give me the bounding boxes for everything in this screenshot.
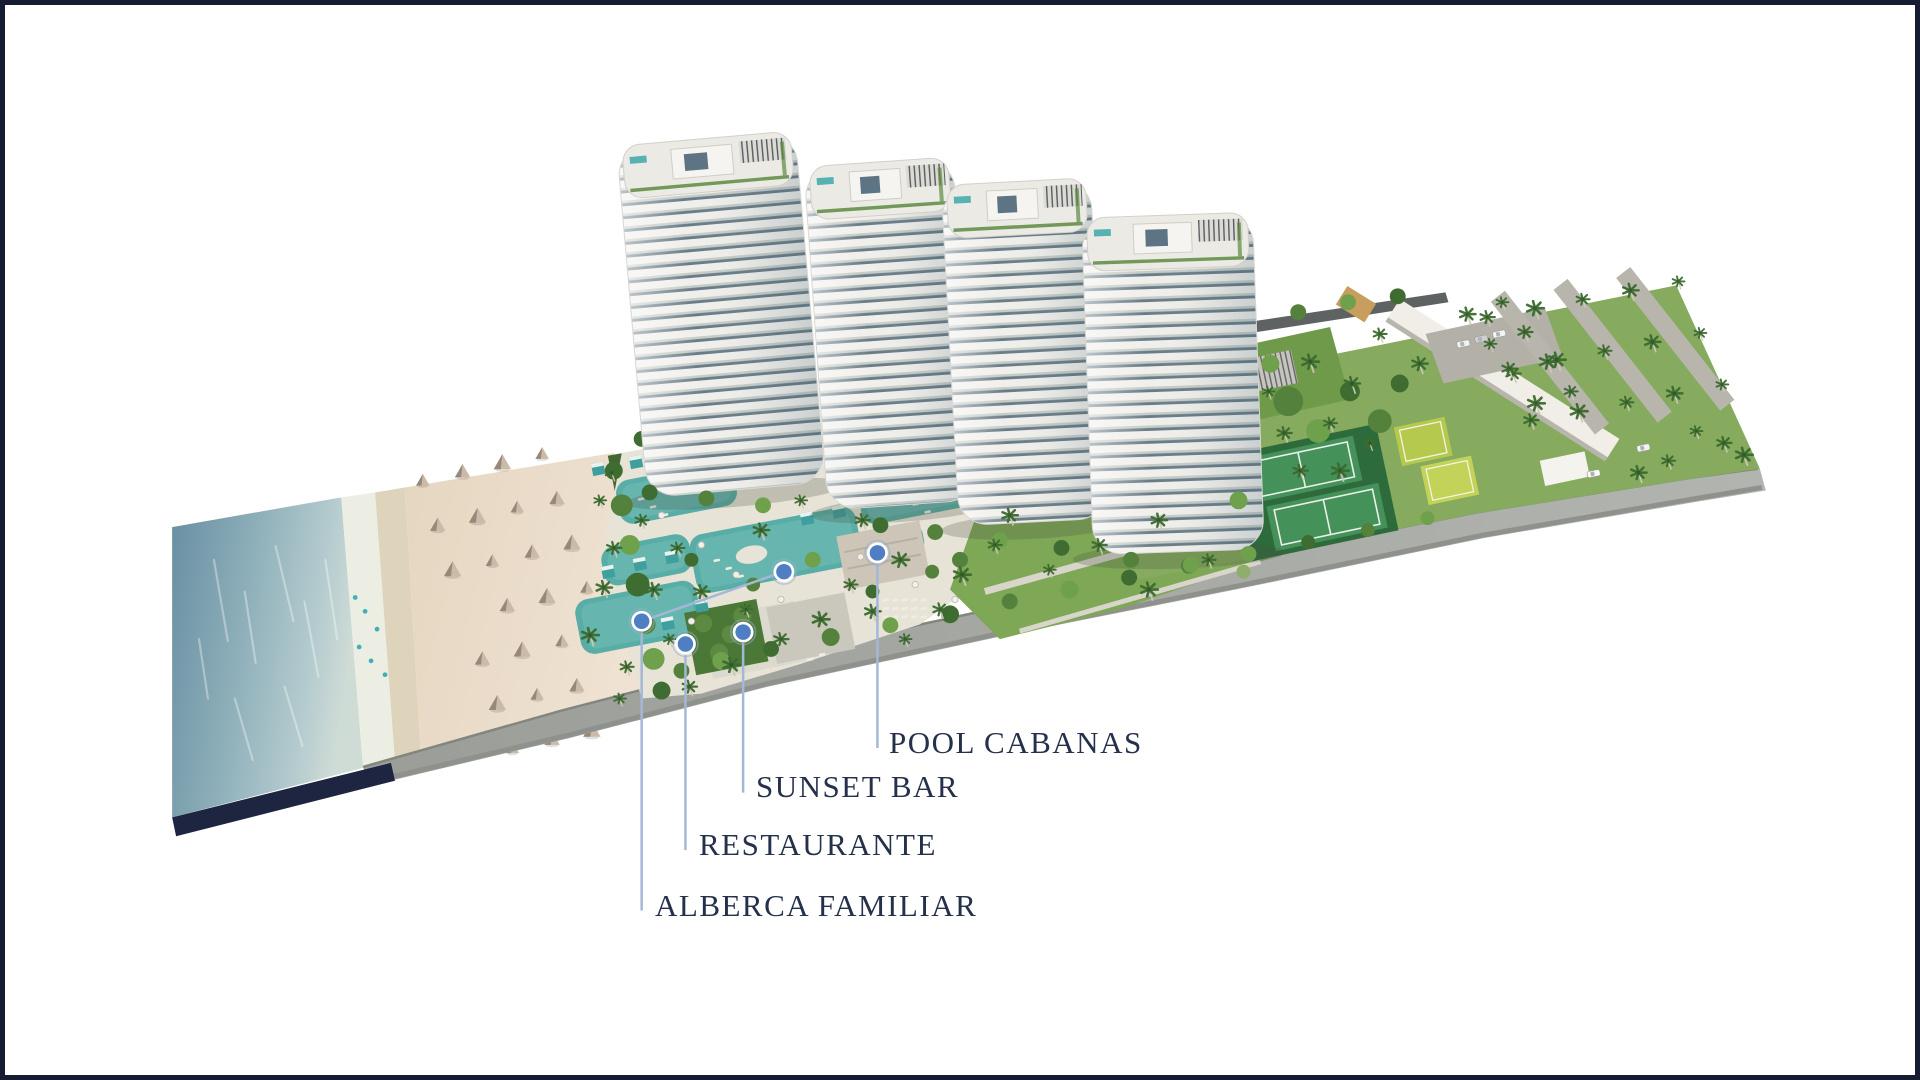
callout-marker-sunset-bar [735,624,751,639]
callout-marker-pool-cabanas [870,545,886,560]
callout-label-alberca-familiar: ALBERCA FAMILIAR [655,890,977,921]
callout-marker-alberca-familiar [634,614,650,629]
callout-marker-alberca-familiar [776,564,792,579]
callout-label-restaurante: RESTAURANTE [699,829,937,860]
tower-4 [1061,211,1285,572]
callout-label-sunset-bar: SUNSET BAR [756,771,959,802]
callout-label-pool-cabanas: POOL CABANAS [889,727,1143,758]
callout-marker-restaurante [678,636,694,651]
beachfront-masterplan-rendering: POOL CABANASSUNSET BARRESTAURANTEALBERCA… [0,0,1920,1080]
residential-towers [595,129,1285,573]
